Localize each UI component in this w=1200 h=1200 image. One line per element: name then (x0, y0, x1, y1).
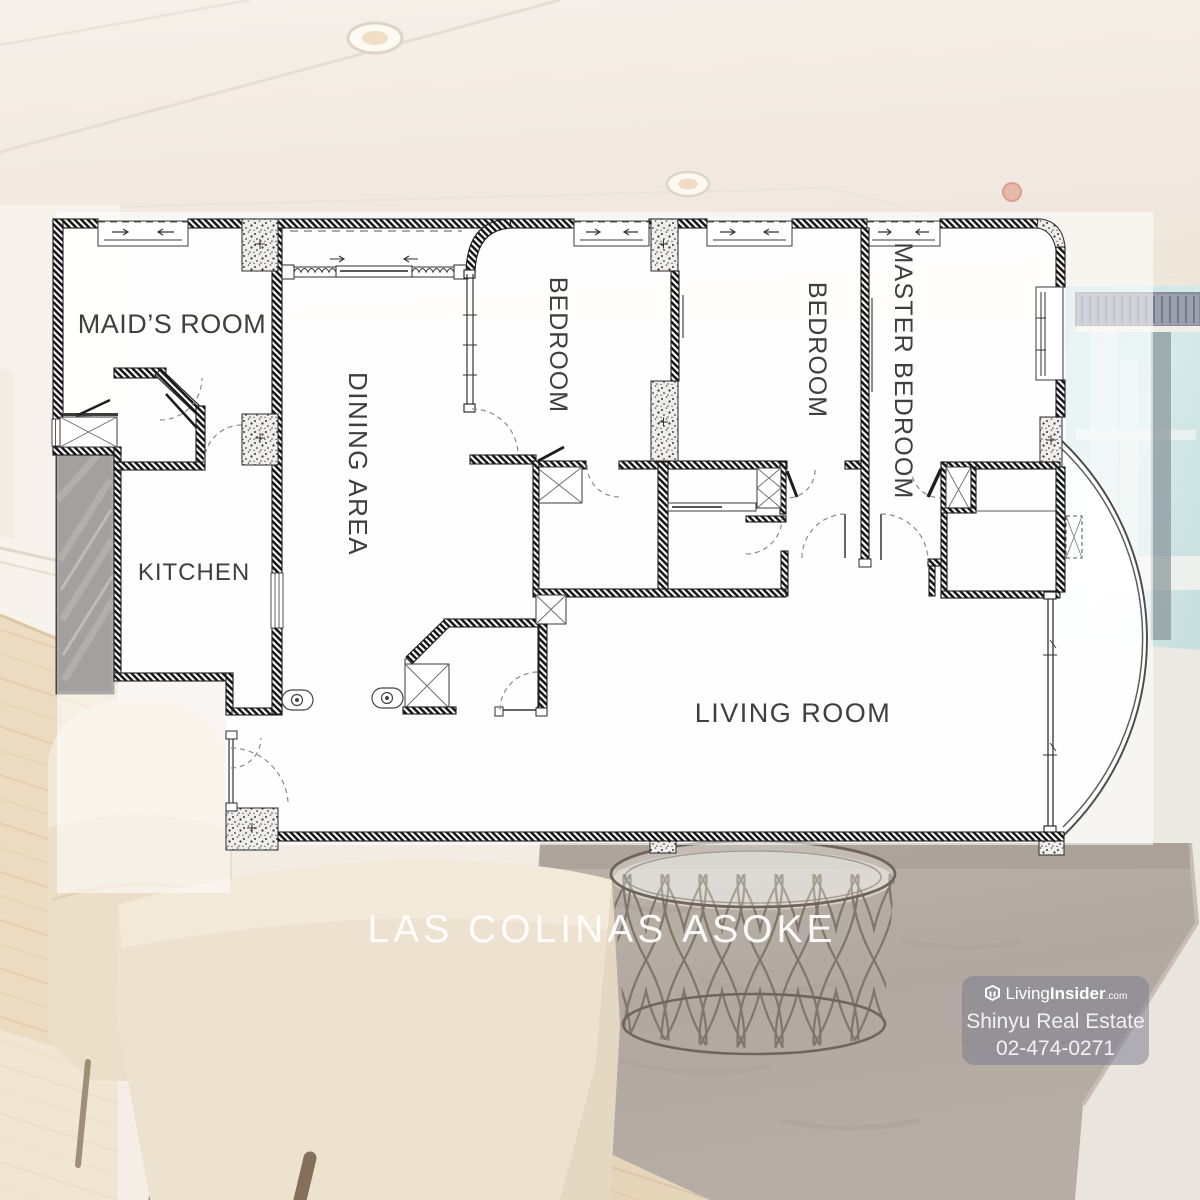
svg-text:LIVING ROOM: LIVING ROOM (695, 698, 892, 728)
svg-text:BEDROOM: BEDROOM (803, 282, 831, 418)
svg-text:KITCHEN: KITCHEN (138, 559, 250, 586)
svg-text:MASTER BEDROOM: MASTER BEDROOM (889, 242, 917, 499)
svg-text:BEDROOM: BEDROOM (544, 277, 572, 413)
svg-text:MAID’S ROOM: MAID’S ROOM (78, 309, 267, 339)
svg-text:DINING AREA: DINING AREA (343, 372, 373, 556)
